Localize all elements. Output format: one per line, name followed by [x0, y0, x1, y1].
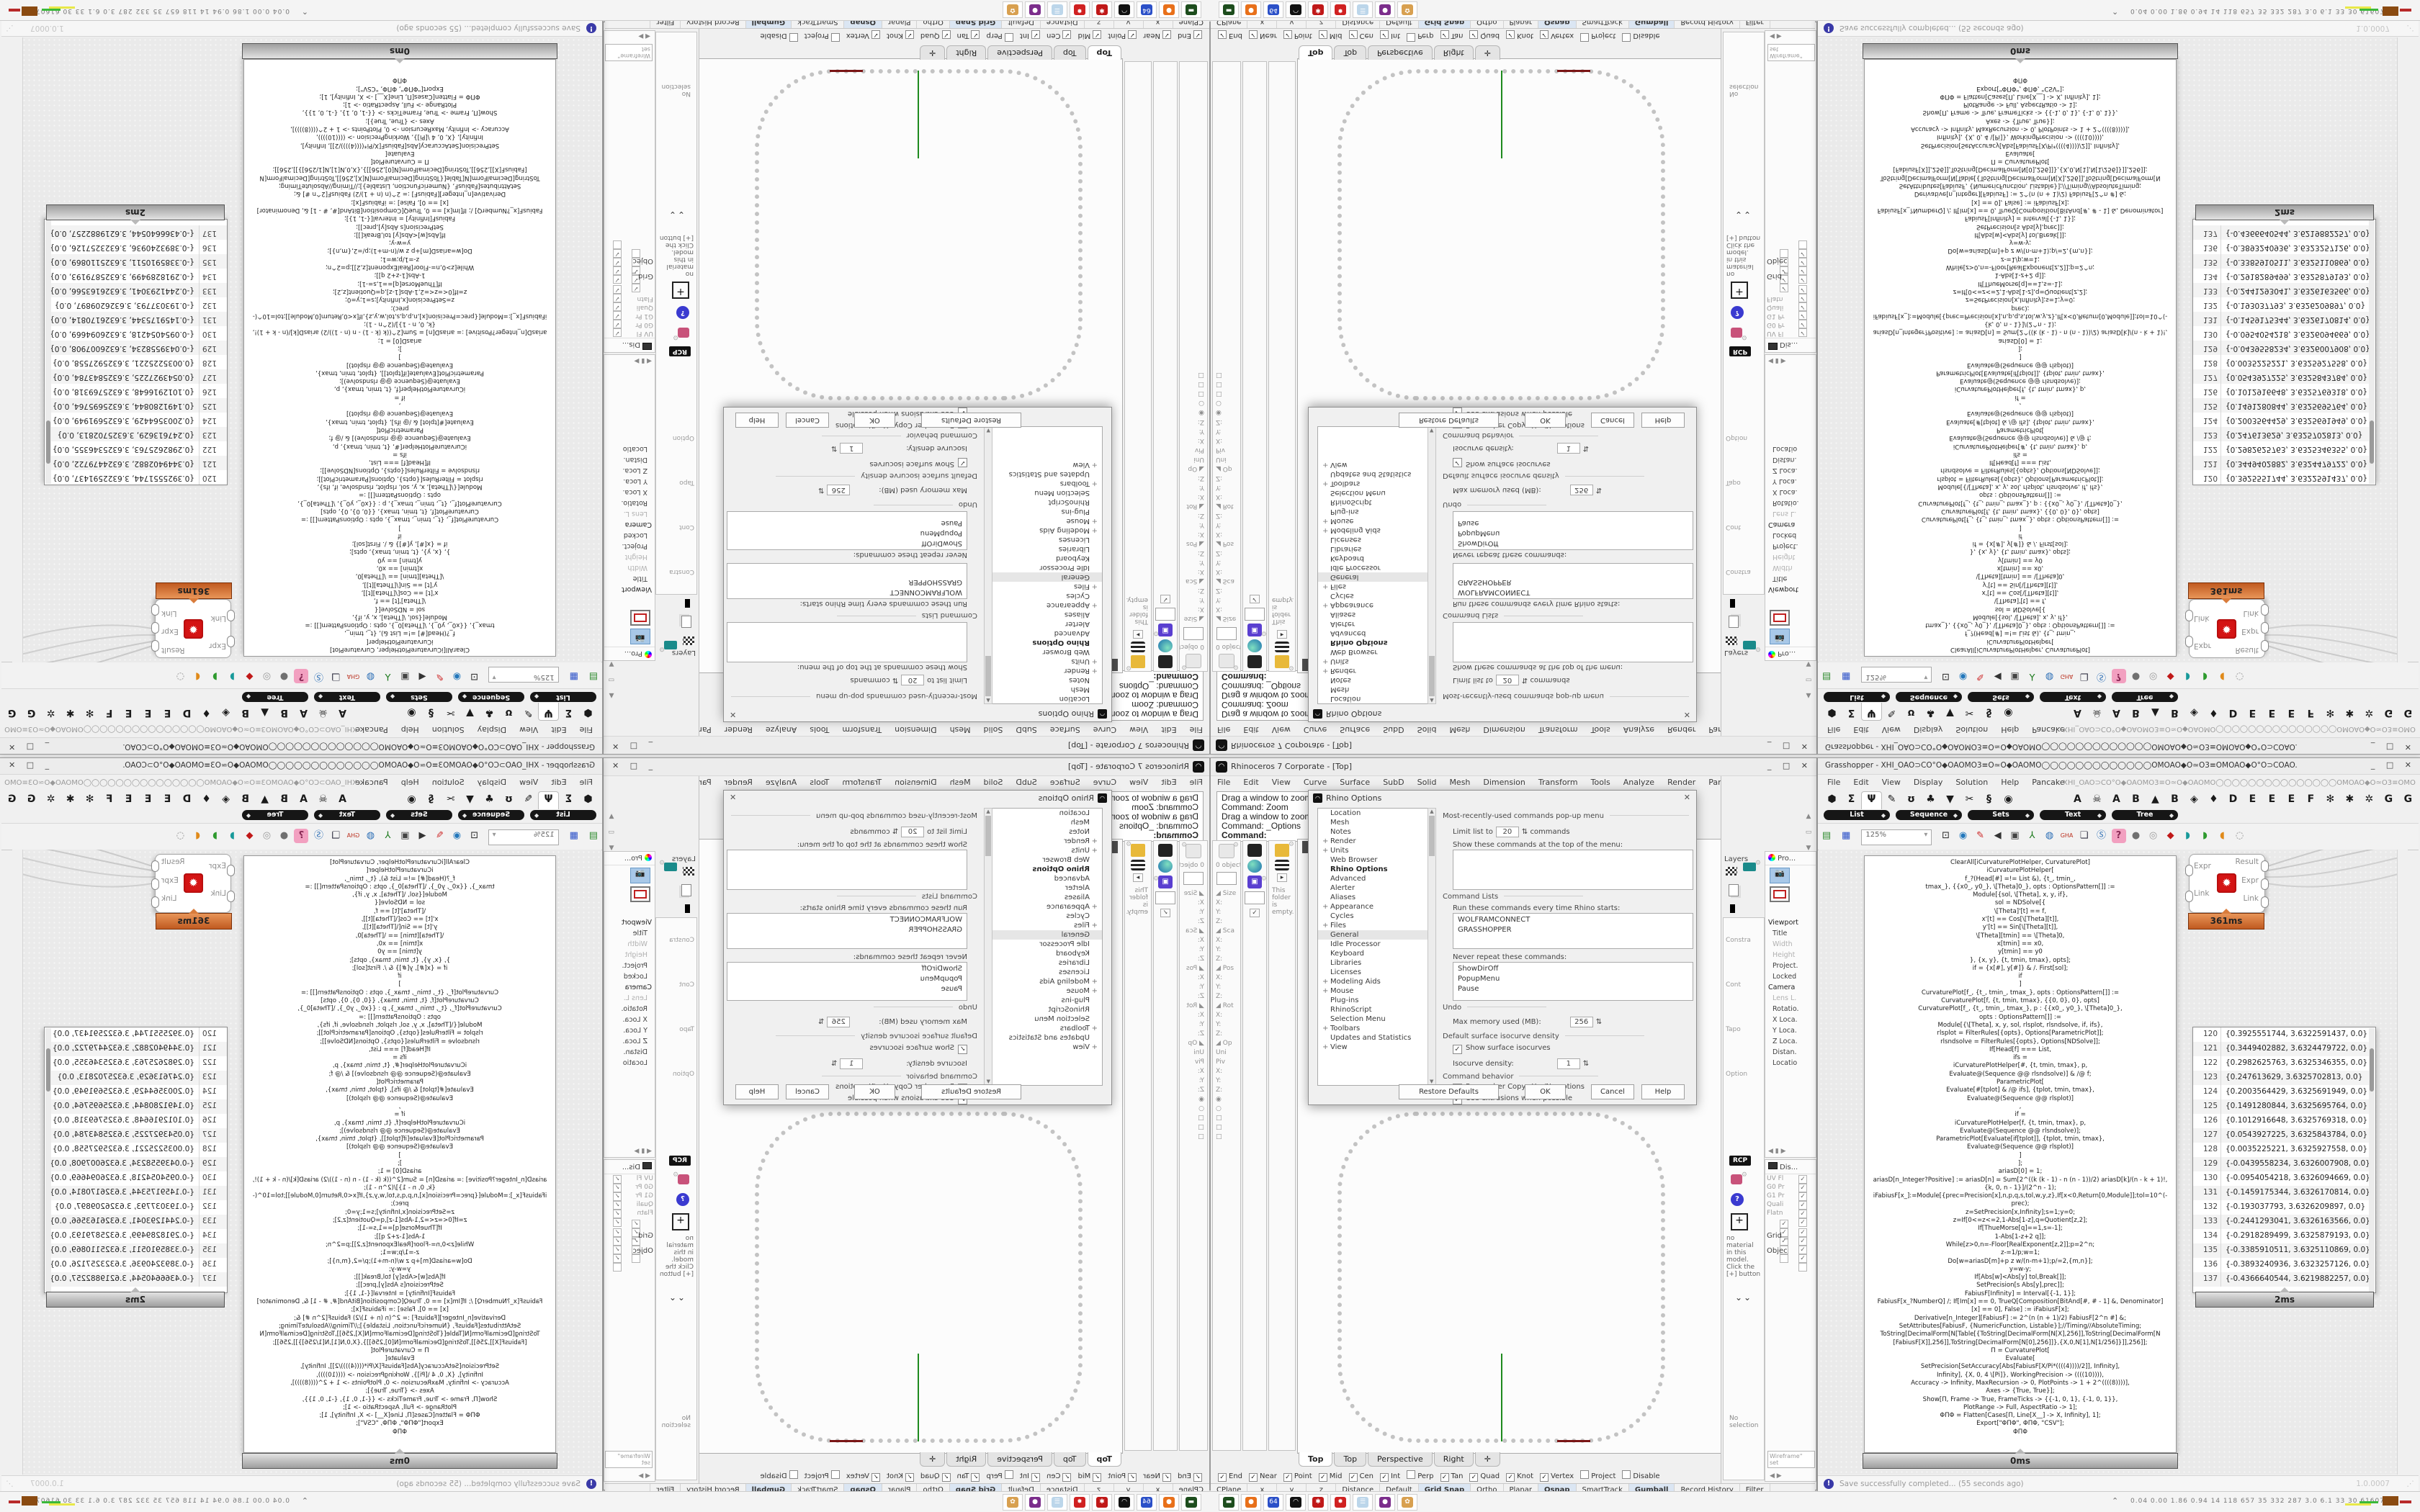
maths-tab-icon[interactable]: Σ	[1842, 793, 1861, 805]
osnap-checkbox[interactable]: ✓	[1506, 1473, 1515, 1482]
gha-installer-icon[interactable]: GHA	[2060, 829, 2074, 843]
viewport-tab[interactable]: Top	[1054, 1452, 1086, 1467]
property-row[interactable]: Title	[1765, 928, 1816, 939]
input-nub-expr[interactable]	[227, 865, 235, 876]
osnap-checkbox[interactable]: ✓	[1440, 1473, 1449, 1482]
axes-widget-icon[interactable]: ⅄	[380, 829, 395, 843]
firefox-icon[interactable]: ●	[1159, 1, 1179, 18]
osnap-checkbox[interactable]: ✓	[1380, 30, 1389, 39]
osnap-toggle[interactable]: ✓Tan	[1440, 1472, 1464, 1482]
plugin-tab[interactable]: B	[2165, 793, 2184, 805]
display-option-checkbox[interactable]: ✓	[613, 302, 622, 311]
display-option-checkbox[interactable]: ✓	[613, 285, 622, 294]
osnap-toggle[interactable]: Project	[1580, 1470, 1615, 1480]
cancel-button[interactable]: Cancel	[786, 413, 829, 428]
category-capsule-list[interactable]: List◆	[530, 692, 596, 702]
hamburger-icon[interactable]	[1275, 642, 1289, 652]
rhino-menu-item[interactable]: Curve	[1297, 723, 1333, 737]
grasshopper-menu-item[interactable]: Solution	[1949, 723, 1994, 737]
run-command-item[interactable]: GRASSHOPPER	[1458, 925, 1688, 935]
folder-icon[interactable]	[1275, 655, 1289, 668]
options-tree-item[interactable]: General	[992, 572, 1102, 582]
options-tree-item[interactable]: +Modeling Aids	[1318, 977, 1428, 986]
rhino-menu-item[interactable]: Transform	[835, 775, 888, 789]
collapsed-strip-label[interactable]: Option	[1724, 415, 1764, 460]
sets-tab-icon[interactable]: Ψ	[1861, 791, 1882, 809]
rhino-menu-item[interactable]: Mesh	[944, 775, 977, 789]
window-flag-icon[interactable]: ❏	[328, 669, 343, 683]
tree-plus-icon[interactable]: +	[1090, 837, 1098, 845]
osnap-checkbox[interactable]: ✓	[871, 1473, 880, 1482]
torus-display-icon[interactable]: ◎	[259, 829, 274, 843]
options-tree-item[interactable]: Licenses	[1318, 535, 1428, 544]
grasshopper-menu-item[interactable]: Help	[1994, 723, 2025, 737]
osnap-toggle[interactable]: Perp	[1407, 32, 1433, 42]
grasshopper-menu-item[interactable]: Display	[471, 775, 514, 789]
tree-plus-icon[interactable]: +	[1322, 1025, 1330, 1032]
options-tree-item[interactable]: Location	[1318, 694, 1428, 703]
plugin-tab[interactable]: A	[2068, 793, 2087, 805]
video-panel-icon[interactable]: ▣	[1158, 624, 1173, 636]
viewport-tab[interactable]: Top	[1299, 1452, 1332, 1467]
rhino-menu-item[interactable]: Transform	[1532, 775, 1585, 789]
grasshopper-canvas[interactable]: ClearAll[iCurvaturePlotHelper, Curvature…	[1819, 850, 2408, 1475]
collapsed-strip-label[interactable]: Constra	[656, 918, 696, 963]
display-option-row[interactable]: UV Fl✓	[1765, 1174, 1816, 1183]
display-scroll-arrows[interactable]: ◀ ▶	[638, 1472, 650, 1480]
options-tree-item[interactable]: General	[1318, 572, 1428, 582]
remote-control-icon[interactable]: ◍	[363, 669, 377, 683]
display-option-row[interactable]: Flatn✓	[1765, 1209, 1816, 1218]
video-panel-icon[interactable]: ▣	[1247, 624, 1262, 636]
finder-icon[interactable]: Ⓢ	[2094, 829, 2109, 843]
display-panel-header[interactable]: Dis...	[604, 338, 655, 352]
run-command-item[interactable]: GRASSHOPPER	[732, 577, 962, 587]
plugin-tab[interactable]: ✻	[2321, 793, 2340, 805]
display-option-checkbox[interactable]: ✓	[1798, 311, 1807, 320]
display-option-checkbox[interactable]: ✓	[613, 1218, 622, 1227]
red-gear-square-icon[interactable]: ✸	[1330, 1, 1350, 18]
category-capsule-text[interactable]: Text◆	[2040, 692, 2106, 702]
options-tree-item[interactable]: Aliases	[1318, 893, 1428, 902]
rhino-menu-item[interactable]: Render	[718, 775, 759, 789]
options-tree-item[interactable]: Notes	[992, 827, 1102, 837]
display-option-row[interactable]: ✓	[1765, 290, 1816, 292]
top-commands-listbox[interactable]	[727, 622, 967, 662]
cancel-button[interactable]: Cancel	[1591, 1084, 1634, 1099]
rhino-menu-item[interactable]: Render	[718, 723, 759, 737]
osnap-checkbox[interactable]	[1580, 33, 1589, 42]
osnap-checkbox[interactable]	[1407, 1470, 1415, 1479]
red-gear-circle-icon[interactable]: ✱	[1092, 1, 1112, 18]
tree-scrollbar[interactable]: ▲▼	[984, 426, 992, 704]
osnap-checkbox[interactable]	[1407, 33, 1415, 42]
osnap-toggle[interactable]: ✓Cen	[1047, 30, 1071, 40]
collapsed-strip-label[interactable]: Constra	[1724, 549, 1764, 594]
plugin-tab[interactable]: E	[2282, 707, 2301, 719]
tree-plus-icon[interactable]: +	[1090, 461, 1098, 469]
never-repeat-item[interactable]: Pause	[732, 518, 962, 528]
rhinoceros-icon[interactable]: ◠	[1114, 1494, 1134, 1511]
chevrons-label[interactable]: ⌄⌄	[668, 210, 685, 220]
grasshopper-titlebar[interactable]: Grasshopper - XHI_OAO⊃CO°O◆OAOMO3≡O≃O◆OA…	[0, 737, 602, 754]
plugin-tab[interactable]: D	[2223, 793, 2243, 805]
tray-chevron[interactable]: ⌃	[2112, 1496, 2118, 1506]
plugin-tab[interactable]: ▲	[2146, 793, 2165, 805]
plugin-tab[interactable]: ☠	[2087, 707, 2107, 719]
category-capsule-tree[interactable]: Tree◆	[242, 692, 308, 702]
tree-plus-icon[interactable]: +	[1322, 1043, 1330, 1051]
options-tree-item[interactable]: Web Browser	[992, 855, 1102, 865]
osnap-toggle[interactable]: ✓Near	[1143, 30, 1171, 40]
osnap-toggle[interactable]: ✓Mid	[1319, 1472, 1343, 1482]
grid-option-row[interactable]	[604, 270, 655, 271]
property-row[interactable]: Y Loca.	[1765, 1025, 1816, 1036]
never-repeat-item[interactable]: PopupMenu	[1458, 974, 1688, 984]
zoom-level-dropdown[interactable]: 125%▾	[1861, 667, 1932, 683]
options-tree-item[interactable]: Notes	[992, 675, 1102, 685]
plugin-tab[interactable]: G	[22, 707, 41, 719]
osnap-toggle[interactable]: ✓Vertex	[846, 30, 880, 40]
plugin-tab[interactable]: E	[138, 707, 158, 719]
property-row[interactable]: Y Loca.	[604, 1025, 655, 1036]
limit-spinner[interactable]: 20	[1496, 827, 1519, 837]
vector-tab-icon[interactable]: ✎	[1882, 707, 1901, 719]
property-row[interactable]: Z Loca.	[1765, 1036, 1816, 1047]
recorder-app-icon[interactable]: ▬	[1181, 1, 1201, 18]
floppy-64-icon[interactable]: 64	[1263, 1, 1283, 18]
bucket-green-icon[interactable]: ◗	[207, 829, 222, 843]
osnap-checkbox[interactable]: ✓	[942, 30, 951, 39]
collapsed-strip-label[interactable]: Constra	[1724, 918, 1764, 963]
window-flag-icon[interactable]: ❏	[2077, 829, 2092, 843]
plugin-tab[interactable]: ✲	[41, 707, 60, 719]
category-capsule-sets[interactable]: Sets◆	[1968, 692, 2034, 702]
display-option-row[interactable]: ✓	[604, 286, 655, 287]
display-option-row[interactable]: G1 Pr✓	[604, 1192, 655, 1200]
plugin-tab[interactable]: G	[2379, 793, 2398, 805]
display-option-checkbox[interactable]: ✓	[1798, 1237, 1807, 1246]
bucket-green-icon[interactable]: ◗	[2198, 669, 2213, 683]
osnap-toggle[interactable]: ✓End	[1178, 30, 1202, 40]
rhinoceros-icon[interactable]: ◠	[1286, 1494, 1306, 1511]
osnap-toggle[interactable]: ✓End	[1218, 1472, 1242, 1482]
grasshopper-menu-item[interactable]: File	[573, 723, 599, 737]
rhino-menu-item[interactable]: File	[1183, 775, 1209, 789]
viewport-tab[interactable]: ✛	[1475, 1452, 1500, 1467]
render-input[interactable]	[1245, 891, 1265, 904]
rhino-menu-item[interactable]: Curve	[1087, 723, 1123, 737]
restore-defaults-button[interactable]: Restore Defaults	[921, 413, 1021, 428]
gitkraken-icon[interactable]: ●	[1025, 1, 1045, 18]
osnap-checkbox[interactable]: ✓	[1093, 1473, 1101, 1482]
chevrons-label[interactable]: ⌄⌄	[1735, 210, 1752, 220]
display-option-row[interactable]: G1 Pr✓	[1765, 1192, 1816, 1200]
options-tree-item[interactable]: +Files	[992, 921, 1102, 930]
rhinoceros-icon[interactable]: ◠	[1114, 1, 1134, 18]
grasshopper-menu-item[interactable]: File	[1821, 775, 1847, 789]
options-tree-item[interactable]: Web Browser	[1318, 855, 1428, 865]
options-tree-item[interactable]: Libraries	[1318, 958, 1428, 968]
rhinoceros-icon[interactable]: ◠	[1286, 1, 1306, 18]
collapsed-strip-label[interactable]: Constra	[656, 549, 696, 594]
notepad-icon[interactable]: ☰	[1047, 1494, 1067, 1511]
property-row[interactable]: Viewport	[604, 584, 655, 595]
properties-panel-header[interactable]: Pro...	[604, 647, 655, 660]
tree-plus-icon[interactable]: +	[1090, 1043, 1098, 1051]
osnap-checkbox[interactable]	[831, 33, 840, 42]
canvas-right-scroll-strip[interactable]	[12, 850, 23, 1475]
bucket-orange-icon[interactable]: ◖	[190, 829, 205, 843]
graduation-cap-icon[interactable]	[1247, 844, 1262, 857]
lasso-select-icon[interactable]: ◌	[2233, 829, 2247, 843]
viewport-tab[interactable]: Top	[1088, 45, 1121, 60]
plugin-tab[interactable]: E	[2243, 793, 2262, 805]
output-nub-expr[interactable]	[2261, 878, 2269, 890]
osnap-checkbox[interactable]: ✓	[1162, 1473, 1171, 1482]
plugin-tab[interactable]: ☠	[313, 707, 333, 719]
tree-plus-icon[interactable]: +	[1322, 461, 1330, 469]
intersect-tab-icon[interactable]: ✂	[1960, 793, 1979, 805]
grasshopper-menu-item[interactable]: Help	[1994, 775, 2025, 789]
black-swatch[interactable]	[685, 599, 690, 608]
rhino-menu-item[interactable]: Dimension	[888, 723, 943, 737]
options-tree-item[interactable]: Plug-ins	[1318, 996, 1428, 1005]
plugin-tab[interactable]: G	[22, 793, 41, 805]
cancel-button[interactable]: Cancel	[1591, 413, 1634, 428]
osnap-checkbox[interactable]: ✓	[1349, 1473, 1358, 1482]
tree-plus-icon[interactable]: +	[1090, 987, 1098, 995]
plugin-tab[interactable]: E	[158, 707, 177, 719]
wireframe-setting-box[interactable]: Wireframe" set	[1767, 1451, 1815, 1468]
display-option-row[interactable]: Quali✓	[1765, 1200, 1816, 1209]
property-row[interactable]: Project.	[604, 960, 655, 971]
options-tree-item[interactable]: +Files	[1318, 582, 1428, 591]
show-isocurves-checkbox[interactable]: ✓	[958, 1045, 967, 1054]
rhino-menu-item[interactable]: Analyze	[1617, 723, 1661, 737]
rhino-menu-item[interactable]: Mesh	[944, 723, 977, 737]
options-tree-item[interactable]: Keyboard	[1318, 949, 1428, 958]
plugin-tab[interactable]: B	[274, 707, 294, 719]
property-row[interactable]: X Loca.	[1765, 1014, 1816, 1025]
options-tree-item[interactable]: RhinoScript	[1318, 498, 1428, 507]
display-option-row[interactable]: G0 Pr✓	[604, 1183, 655, 1192]
property-row[interactable]: Lens L.	[1765, 993, 1816, 1004]
property-row[interactable]: Lens L.	[604, 993, 655, 1004]
grasshopper-menu-item[interactable]: File	[1821, 723, 1847, 737]
run-command-item[interactable]: GRASSHOPPER	[732, 925, 962, 935]
osnap-checkbox[interactable]: ✓	[1540, 30, 1549, 39]
osnap-checkbox[interactable]: ✓	[1031, 30, 1040, 39]
tree-scrollbar[interactable]: ▲▼	[1428, 426, 1436, 704]
options-tree-item[interactable]: Mesh	[1318, 818, 1428, 827]
viewport-tab[interactable]: Perspective	[1368, 1452, 1433, 1467]
osnap-toggle[interactable]: Perp	[1407, 1470, 1433, 1480]
options-tree-item[interactable]: +Units	[1318, 657, 1428, 666]
never-repeat-listbox[interactable]: ShowDirOffPopupMenuPause	[727, 962, 967, 1001]
options-tree-item[interactable]: Aliases	[1318, 610, 1428, 619]
collapsed-strip-label[interactable]: Cont	[1724, 505, 1764, 549]
options-tree-item[interactable]: Alerter	[1318, 883, 1428, 893]
osnap-toggle[interactable]: ✓Int	[1020, 1472, 1040, 1482]
plugin-tab[interactable]: B	[2165, 707, 2184, 719]
expand-button[interactable]: ▸	[1133, 873, 1143, 882]
options-tree-item[interactable]: Keyboard	[1318, 554, 1428, 563]
options-tree-item[interactable]: Advanced	[992, 874, 1102, 883]
rhino-titlebar[interactable]: ◠ Rhinoceros 7 Corporate - [Top] _ □ ✕	[604, 736, 1209, 754]
rhino-menu-item[interactable]: Solid	[1411, 775, 1443, 789]
property-row[interactable]: Locatio	[1765, 444, 1816, 454]
osnap-checkbox[interactable]: ✓	[1319, 30, 1327, 39]
viewport-tab[interactable]: Perspective	[987, 1452, 1052, 1467]
property-row[interactable]: Camera	[1765, 982, 1816, 993]
ok-button[interactable]: OK	[854, 1084, 895, 1099]
output-nub-link[interactable]	[151, 896, 159, 908]
surprise-box-icon[interactable]: ?	[2112, 829, 2126, 843]
bucket-orange-icon[interactable]: ◖	[190, 669, 205, 683]
open-document-icon[interactable]: ▤	[586, 669, 601, 683]
plugin-tab[interactable]: ▲	[255, 707, 274, 719]
plugin-tab[interactable]: ✻	[2321, 707, 2340, 719]
points-list-panel[interactable]: 120{0.3925551744, 3.6322591437, 0.0}121{…	[44, 219, 228, 485]
display-option-checkbox[interactable]: ✓	[613, 1175, 622, 1184]
rhino-menu-item[interactable]: Analyze	[759, 723, 803, 737]
page-copy-icon[interactable]	[1729, 616, 1739, 628]
plugin-tab[interactable]: ✻	[80, 707, 99, 719]
output-nub-link[interactable]	[2261, 604, 2269, 616]
bucket-orange-icon[interactable]: ◖	[2215, 829, 2230, 843]
surface-tab-icon[interactable]: ♣	[1921, 707, 1940, 719]
viewport-props-icon[interactable]	[1770, 886, 1790, 902]
limit-spinner[interactable]: 20	[1496, 675, 1519, 685]
isocurve-density-spinner[interactable]: 1	[1557, 1058, 1580, 1069]
maths-tab-icon[interactable]: Σ	[1842, 707, 1861, 719]
sphere-display-icon[interactable]: ●	[2129, 669, 2143, 683]
plugin-tab[interactable]: E	[2262, 707, 2282, 719]
options-tree-item[interactable]: +Render	[1318, 666, 1428, 675]
page-copy-icon[interactable]	[1729, 884, 1739, 896]
property-row[interactable]: Height	[604, 950, 655, 960]
hamburger-icon[interactable]	[1131, 642, 1145, 652]
display-scroll-arrows[interactable]: ◀ ▶	[1770, 32, 1782, 40]
rcp-chip[interactable]: RCP	[669, 346, 691, 356]
osnap-checkbox[interactable]: ✓	[1063, 1473, 1072, 1482]
never-repeat-item[interactable]: Pause	[1458, 518, 1688, 528]
curve-tab-icon[interactable]: ʊ	[499, 793, 519, 805]
property-row[interactable]: Project.	[1765, 541, 1816, 552]
osnap-toggle[interactable]: ✓Knot	[887, 1472, 914, 1482]
rhino-menu-item[interactable]: Curve	[1297, 775, 1333, 789]
gumball-compass-icon[interactable]	[1219, 654, 1234, 668]
property-row[interactable]: Locked	[1765, 971, 1816, 982]
viewport-tab[interactable]: Right	[946, 1452, 986, 1467]
black-swatch[interactable]	[1730, 599, 1735, 608]
grid-option-checkbox[interactable]	[613, 1263, 622, 1272]
input-nub-link[interactable]	[227, 891, 235, 902]
surprise-box-icon[interactable]: ?	[2112, 669, 2126, 683]
display-option-row[interactable]: ✓	[1765, 289, 1816, 290]
camera-props-icon[interactable]: 📷	[1770, 868, 1790, 883]
cassette-icon[interactable]: ▣	[398, 669, 412, 683]
top-commands-listbox[interactable]	[1453, 622, 1693, 662]
rhino-menu-item[interactable]: SubD	[1376, 723, 1410, 737]
options-tree-item[interactable]: +Toolbars	[992, 1024, 1102, 1033]
display-option-checkbox[interactable]: ✓	[613, 1210, 622, 1218]
grasshopper-window-controls[interactable]: _ □ ✕	[4, 742, 49, 752]
osnap-checkbox[interactable]: ✓	[1540, 1473, 1549, 1482]
options-tree-item[interactable]: Selection Menu	[992, 488, 1102, 498]
red-gear-square-icon[interactable]: ✸	[1070, 1494, 1090, 1511]
floppy-64-icon[interactable]: 64	[1137, 1494, 1157, 1511]
palette-icon[interactable]: ✿	[1397, 1, 1417, 18]
osnap-checkbox[interactable]: ✓	[1469, 1473, 1478, 1482]
finder-icon[interactable]: Ⓢ	[2094, 669, 2109, 683]
layers-checker-icon[interactable]	[683, 867, 694, 876]
options-tree-item[interactable]: RhinoScript	[992, 498, 1102, 507]
rhino-menu-item[interactable]: SubD	[1376, 775, 1410, 789]
canvas-right-scroll-strip[interactable]	[2397, 850, 2408, 1475]
run-commands-listbox[interactable]: WOLFRAMCONNECTGRASSHOPPER	[1453, 563, 1693, 599]
grasshopper-canvas[interactable]: ClearAll[iCurvaturePlotHelper, Curvature…	[12, 37, 601, 662]
viewport-tab[interactable]: ✛	[920, 45, 945, 60]
palette-icon[interactable]: ✿	[1003, 1494, 1023, 1511]
grasshopper-menu-item[interactable]: Edit	[1847, 775, 1875, 789]
points-scrollbar[interactable]	[2369, 220, 2375, 484]
run-command-item[interactable]: WOLFRAMCONNECT	[1458, 915, 1688, 925]
rhino-menu-item[interactable]: Analyze	[759, 775, 803, 789]
transform-tab-icon[interactable]: §	[1979, 707, 1999, 719]
red-gear-square-icon[interactable]: ✸	[1330, 1494, 1350, 1511]
osnap-toggle[interactable]: ✓Cen	[1349, 1472, 1373, 1482]
plugin-tab[interactable]: ▲	[255, 793, 274, 805]
help-button[interactable]: Help	[735, 1084, 779, 1099]
display-option-checkbox[interactable]: ✓	[1780, 284, 1788, 292]
collapsed-strip-label[interactable]: Tapo	[656, 1007, 696, 1052]
property-row[interactable]: Z Loca.	[1765, 465, 1816, 476]
category-capsule-text[interactable]: Text◆	[314, 692, 380, 702]
display-option-row[interactable]: G1 Pr✓	[604, 312, 655, 320]
save-document-icon[interactable]: ▦	[1839, 669, 1853, 683]
gem-display-icon[interactable]: ◆	[242, 829, 256, 843]
osnap-toggle[interactable]: ✓Near	[1249, 30, 1277, 40]
palette-icon[interactable]: ✿	[1397, 1494, 1417, 1511]
options-tree-item[interactable]: Advanced	[992, 629, 1102, 638]
plugin-tab[interactable]: ♦	[197, 793, 216, 805]
property-row[interactable]: Y Loca.	[1765, 476, 1816, 487]
display-option-row[interactable]: ✓	[604, 290, 655, 292]
osnap-checkbox[interactable]: ✓	[1063, 30, 1072, 39]
options-tree-item[interactable]: +Appearance	[1318, 600, 1428, 610]
output-nub-result[interactable]	[2261, 640, 2269, 652]
property-row[interactable]: Z Loca.	[604, 465, 655, 476]
output-nub-expr[interactable]	[151, 878, 159, 890]
display-option-row[interactable]: ✓	[604, 284, 655, 286]
display-option-row[interactable]: G1 Pr✓	[1765, 312, 1816, 320]
folder-icon[interactable]	[1275, 844, 1289, 857]
resize-grip[interactable]: ⋰	[2407, 24, 2415, 32]
collapsed-strip-label[interactable]: Tapo	[656, 460, 696, 505]
wolfram-mathematica-component[interactable]: Expr Link Result Expr Link ✹	[2189, 854, 2265, 913]
sets-tab-icon[interactable]: Ψ	[538, 791, 559, 809]
osnap-toggle[interactable]: ✓Quad	[920, 30, 951, 40]
wireframe-setting-box[interactable]: Wireframe" set	[605, 1451, 653, 1468]
display-option-row[interactable]: ✓	[1765, 284, 1816, 286]
options-tree-item[interactable]: +Render	[992, 666, 1102, 675]
grasshopper-menu-item[interactable]: View	[1875, 723, 1907, 737]
rhino-menu-item[interactable]: Tools	[1585, 775, 1617, 789]
ok-button[interactable]: OK	[854, 413, 895, 428]
max-memory-spinner[interactable]: 256	[827, 1017, 850, 1027]
